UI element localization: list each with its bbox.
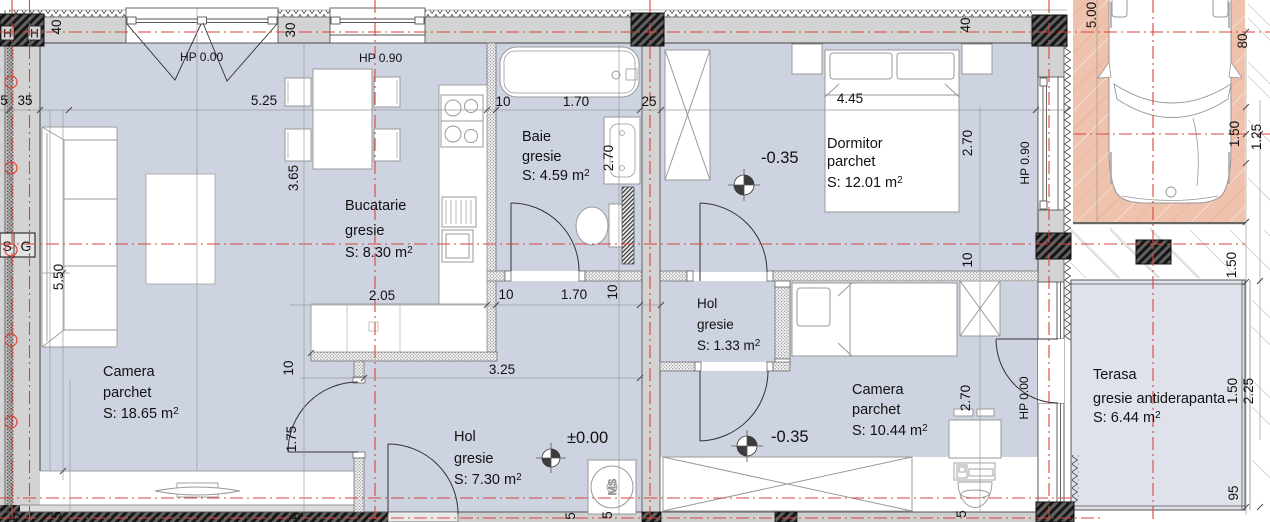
svg-text:Camera: Camera [103, 364, 156, 380]
svg-text:2.05: 2.05 [369, 288, 395, 303]
svg-text:parchet: parchet [852, 402, 900, 418]
svg-text:35: 35 [17, 93, 32, 108]
svg-text:S: 18.65 m2: S: 18.65 m2 [103, 406, 179, 422]
svg-text:HP 0.90: HP 0.90 [1018, 141, 1032, 184]
svg-text:5.50: 5.50 [51, 264, 66, 290]
svg-text:5: 5 [0, 93, 8, 108]
svg-text:2.70: 2.70 [960, 130, 975, 156]
svg-text:HP 0.90: HP 0.90 [359, 51, 402, 65]
svg-text:S: 6.44 m2: S: 6.44 m2 [1093, 410, 1161, 426]
svg-text:gresie: gresie [454, 451, 494, 467]
svg-text:5.25: 5.25 [251, 93, 277, 108]
svg-text:S: 8.30 m2: S: 8.30 m2 [345, 245, 413, 261]
svg-text:80: 80 [1235, 33, 1250, 48]
svg-text:1.50: 1.50 [1224, 252, 1239, 278]
svg-text:40: 40 [49, 19, 64, 34]
svg-text:gresie: gresie [345, 223, 385, 239]
svg-text:25: 25 [641, 94, 656, 109]
svg-text:5: 5 [563, 512, 578, 520]
svg-text:S: 4.59 m2: S: 4.59 m2 [522, 168, 590, 184]
svg-text:10: 10 [605, 284, 620, 299]
svg-text:5: 5 [49, 511, 64, 519]
svg-text:4.45: 4.45 [837, 91, 863, 106]
svg-text:S: 10.44 m2: S: 10.44 m2 [852, 423, 928, 439]
svg-text:H: H [30, 27, 39, 41]
svg-text:30: 30 [283, 22, 298, 37]
svg-text:5: 5 [600, 511, 615, 519]
svg-text:1.50: 1.50 [1225, 378, 1240, 404]
svg-text:40: 40 [958, 17, 973, 32]
svg-text:S: 1.33 m2: S: 1.33 m2 [697, 338, 761, 353]
svg-text:1.50: 1.50 [1227, 121, 1242, 147]
svg-text:parchet: parchet [827, 154, 875, 170]
svg-text:10: 10 [498, 287, 513, 302]
svg-text:±0.00: ±0.00 [567, 429, 608, 447]
svg-text:1.70: 1.70 [563, 94, 589, 109]
svg-text:Baie: Baie [522, 129, 551, 145]
svg-text:Camera: Camera [852, 382, 905, 398]
svg-text:2.70: 2.70 [958, 385, 973, 411]
svg-text:1.75: 1.75 [284, 426, 299, 452]
svg-text:H: H [3, 27, 12, 41]
svg-text:1.70: 1.70 [561, 287, 587, 302]
svg-text:2.70: 2.70 [601, 145, 616, 171]
svg-text:5: 5 [8, 513, 23, 521]
svg-text:10: 10 [960, 252, 975, 267]
svg-text:S: 7.30 m2: S: 7.30 m2 [454, 472, 522, 488]
svg-text:3.65: 3.65 [286, 165, 301, 191]
svg-text:1.25: 1.25 [1249, 124, 1264, 150]
svg-text:gresie antiderapanta: gresie antiderapanta [1093, 391, 1226, 407]
svg-text:Hol: Hol [697, 296, 717, 311]
svg-text:5: 5 [954, 510, 969, 518]
svg-text:-0.35: -0.35 [771, 428, 809, 446]
svg-text:95: 95 [1226, 485, 1241, 500]
svg-text:Hol: Hol [454, 429, 476, 445]
svg-text:parchet: parchet [103, 385, 151, 401]
svg-text:gresie: gresie [697, 317, 734, 332]
svg-text:gresie: gresie [522, 149, 562, 165]
svg-text:10: 10 [495, 94, 510, 109]
svg-text:Terasa: Terasa [1093, 367, 1137, 383]
svg-text:10: 10 [281, 360, 296, 375]
svg-text:MS: MS [607, 479, 619, 496]
svg-text:HP 0.00: HP 0.00 [1017, 376, 1031, 419]
svg-text:S: 12.01 m2: S: 12.01 m2 [827, 175, 903, 191]
svg-text:2.25: 2.25 [1241, 378, 1256, 404]
svg-text:3.25: 3.25 [489, 362, 515, 377]
svg-text:-0.35: -0.35 [761, 149, 799, 167]
svg-text:Bucatarie: Bucatarie [345, 198, 406, 214]
svg-text:5.00: 5.00 [1084, 2, 1099, 28]
svg-text:5: 5 [289, 512, 304, 520]
svg-text:HP 0.00: HP 0.00 [180, 50, 223, 64]
svg-text:Dormitor: Dormitor [827, 136, 883, 152]
